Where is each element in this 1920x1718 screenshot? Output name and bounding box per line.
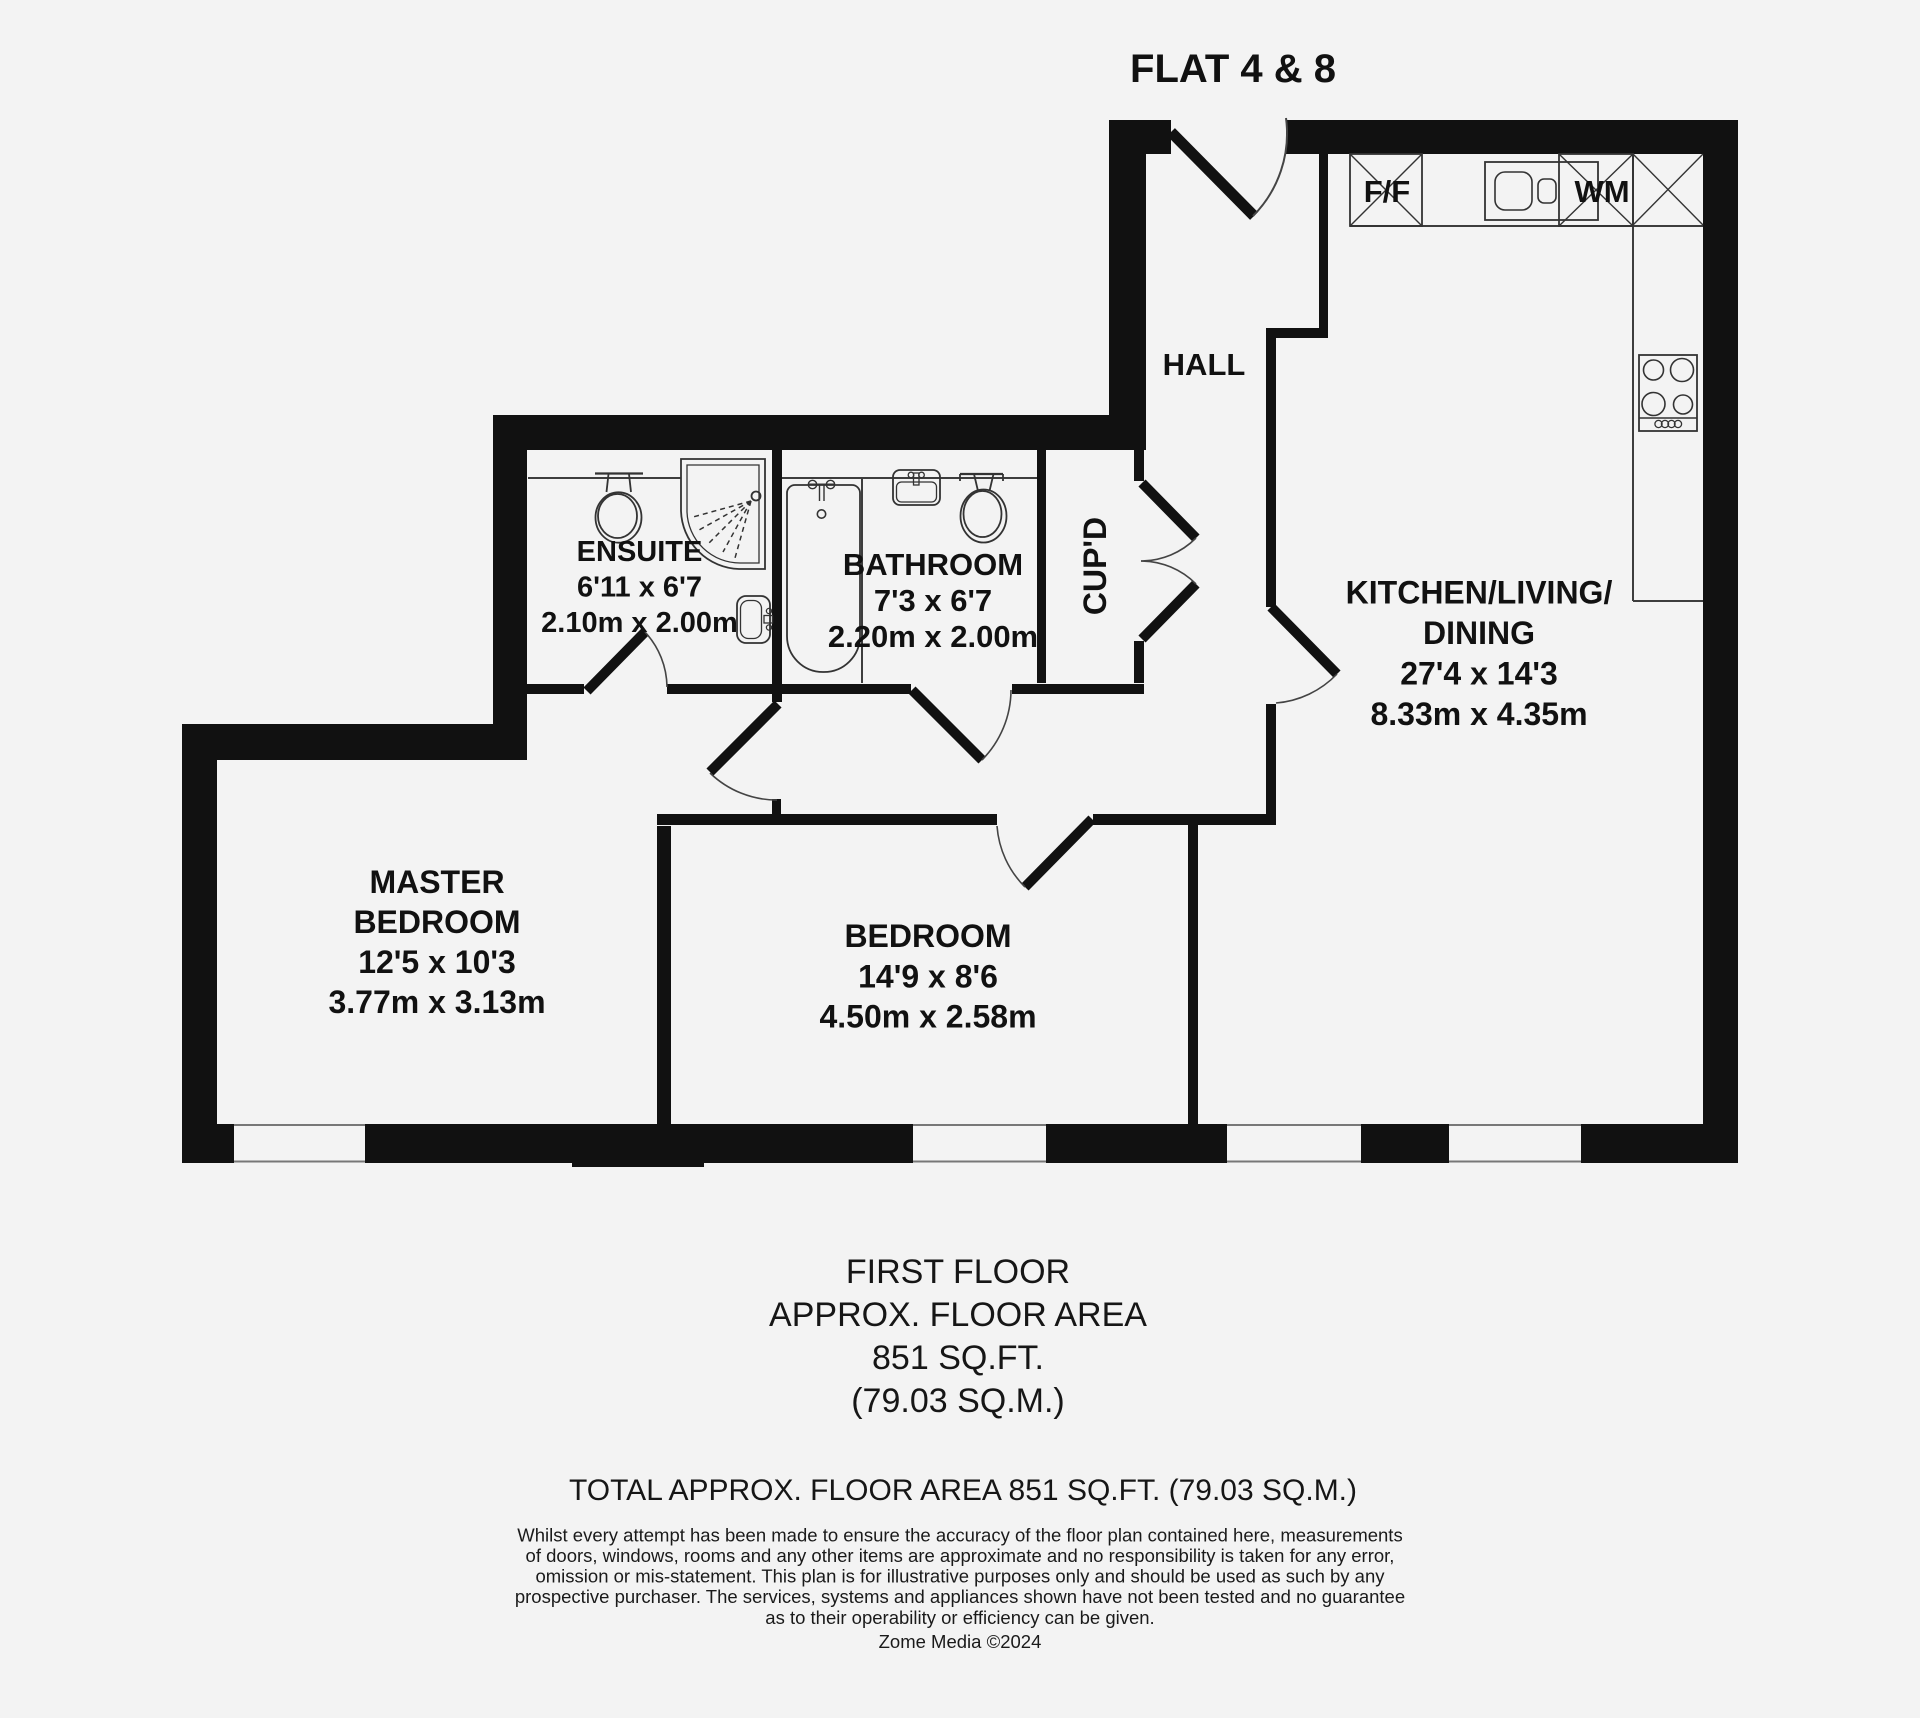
svg-text:CUP'D: CUP'D — [1077, 517, 1113, 615]
svg-text:ENSUITE: ENSUITE — [577, 536, 703, 568]
svg-text:BATHROOM: BATHROOM — [843, 547, 1023, 582]
svg-text:as to their operability or eff: as to their operability or efficiency ca… — [765, 1607, 1154, 1628]
svg-text:(79.03 SQ.M.): (79.03 SQ.M.) — [851, 1382, 1065, 1420]
svg-text:FLAT 4 & 8: FLAT 4 & 8 — [1130, 47, 1336, 91]
svg-text:2.20m x 2.00m: 2.20m x 2.00m — [828, 619, 1038, 654]
svg-text:Whilst every attempt has been: Whilst every attempt has been made to en… — [517, 1525, 1402, 1546]
svg-text:14'9 x 8'6: 14'9 x 8'6 — [858, 959, 998, 995]
svg-text:TOTAL APPROX. FLOOR AREA 851 S: TOTAL APPROX. FLOOR AREA 851 SQ.FT. (79.… — [569, 1474, 1357, 1507]
svg-text:prospective purchaser. The ser: prospective purchaser. The services, sys… — [515, 1586, 1405, 1607]
svg-text:6'11 x 6'7: 6'11 x 6'7 — [577, 572, 702, 604]
svg-text:BEDROOM: BEDROOM — [844, 918, 1011, 954]
svg-text:851 SQ.FT.: 851 SQ.FT. — [872, 1339, 1044, 1377]
svg-text:12'5 x 10'3: 12'5 x 10'3 — [358, 944, 516, 980]
svg-text:3.77m x 3.13m: 3.77m x 3.13m — [328, 984, 545, 1020]
svg-text:2.10m x 2.00m: 2.10m x 2.00m — [541, 607, 738, 639]
svg-text:of doors, windows, rooms and a: of doors, windows, rooms and any other i… — [526, 1545, 1395, 1566]
svg-text:27'4 x 14'3: 27'4 x 14'3 — [1400, 656, 1558, 692]
svg-text:WM: WM — [1574, 174, 1629, 209]
svg-text:8.33m x 4.35m: 8.33m x 4.35m — [1370, 696, 1587, 732]
svg-text:4.50m x 2.58m: 4.50m x 2.58m — [819, 999, 1036, 1035]
svg-text:KITCHEN/LIVING/: KITCHEN/LIVING/ — [1346, 575, 1613, 611]
svg-text:7'3 x 6'7: 7'3 x 6'7 — [874, 583, 992, 618]
svg-text:DINING: DINING — [1423, 615, 1535, 651]
svg-text:MASTER: MASTER — [369, 864, 504, 900]
svg-text:Zome Media ©2024: Zome Media ©2024 — [879, 1631, 1042, 1652]
svg-text:BEDROOM: BEDROOM — [353, 904, 520, 940]
svg-text:FIRST FLOOR: FIRST FLOOR — [846, 1253, 1070, 1291]
svg-text:APPROX. FLOOR AREA: APPROX. FLOOR AREA — [769, 1296, 1147, 1334]
svg-text:omission or mis-statement. Thi: omission or mis-statement. This plan is … — [535, 1566, 1385, 1587]
svg-text:F/F: F/F — [1364, 174, 1411, 209]
svg-text:HALL: HALL — [1163, 347, 1246, 382]
